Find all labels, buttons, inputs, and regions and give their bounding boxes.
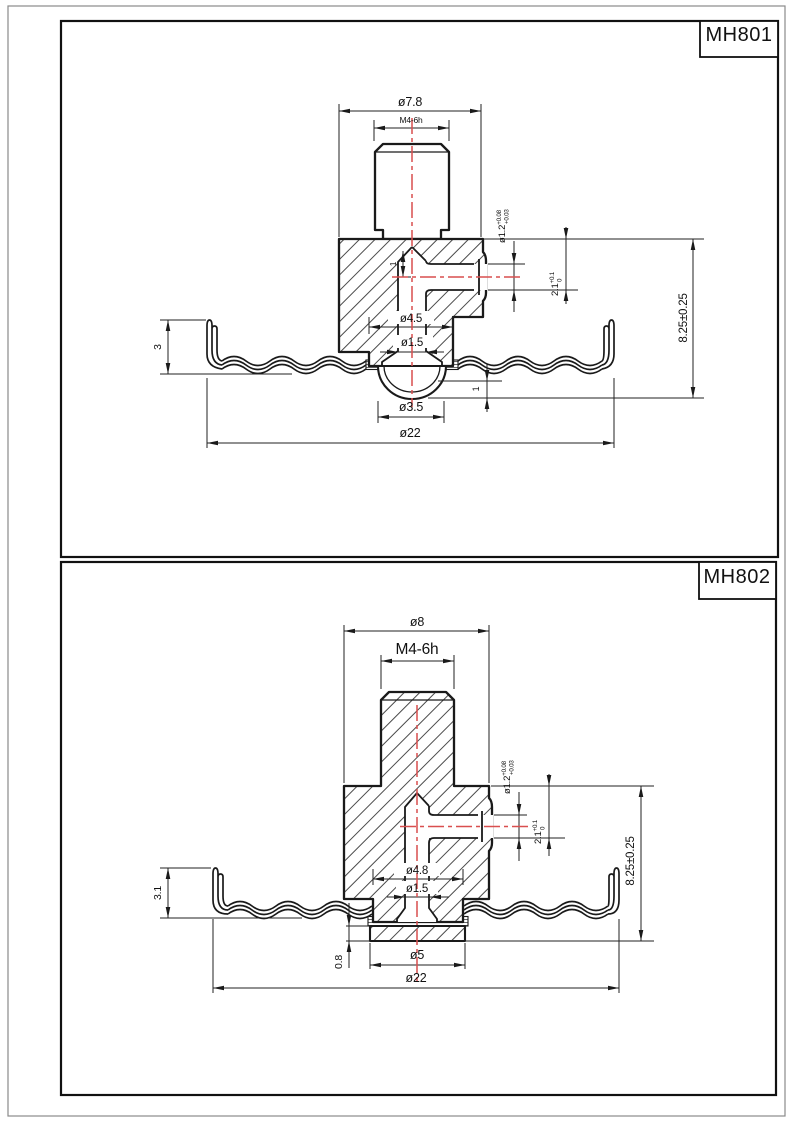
dim-flange-thickness: 0.8 xyxy=(333,955,345,969)
panel-mh801: ø7.8 M4-6h ø1.2+0.08+0.03 2.1+0.10 8.25±… xyxy=(61,21,778,557)
panel-label: MH801 xyxy=(706,24,773,46)
dim-disc-dia: ø22 xyxy=(406,971,427,985)
panel-mh802: ø8 M4-6h ø1.2+0.08+0.03 2.1+0.10 8.25±0.… xyxy=(61,562,776,1095)
dim-height: 8.25±0.25 xyxy=(625,836,637,885)
dim-thread: M4-6h xyxy=(396,641,439,658)
dim-port-depth: 2.1+0.10 xyxy=(532,819,546,844)
dim-port-dia: ø1.2+0.08+0.03 xyxy=(501,760,515,794)
dim-disc-dia: ø22 xyxy=(400,426,421,440)
dim-channel: ø1.5 xyxy=(406,883,428,895)
dim-thread: M4-6h xyxy=(399,115,423,125)
engineering-drawing: ø7.8 M4-6h ø1.2+0.08+0.03 2.1+0.10 8.25±… xyxy=(0,0,793,1122)
dim-bore: ø4.8 xyxy=(406,865,428,877)
dim-dome-height: 1 xyxy=(471,386,481,391)
drawing-page: ø7.8 M4-6h ø1.2+0.08+0.03 2.1+0.10 8.25±… xyxy=(0,0,793,1122)
dim-top-od: ø7.8 xyxy=(398,95,422,109)
dim-flange-dia: ø5 xyxy=(410,948,424,962)
dim-rim-height: 3.1 xyxy=(152,886,164,900)
dim-bore: ø4.5 xyxy=(400,313,422,325)
dim-height: 8.25±0.25 xyxy=(678,293,690,342)
dim-channel: ø1.5 xyxy=(401,337,423,349)
dim-port-dia: ø1.2+0.08+0.03 xyxy=(496,209,510,243)
dim-port-depth: 2.1+0.10 xyxy=(549,271,563,296)
panel-label: MH802 xyxy=(704,566,771,588)
dim-dome-dia: ø3.5 xyxy=(399,400,423,414)
dim-rim-height: 3 xyxy=(152,344,164,350)
dim-top-od: ø8 xyxy=(410,615,424,629)
dimension-texts: ø7.8 M4-6h ø1.2+0.08+0.03 2.1+0.10 8.25±… xyxy=(152,24,772,440)
